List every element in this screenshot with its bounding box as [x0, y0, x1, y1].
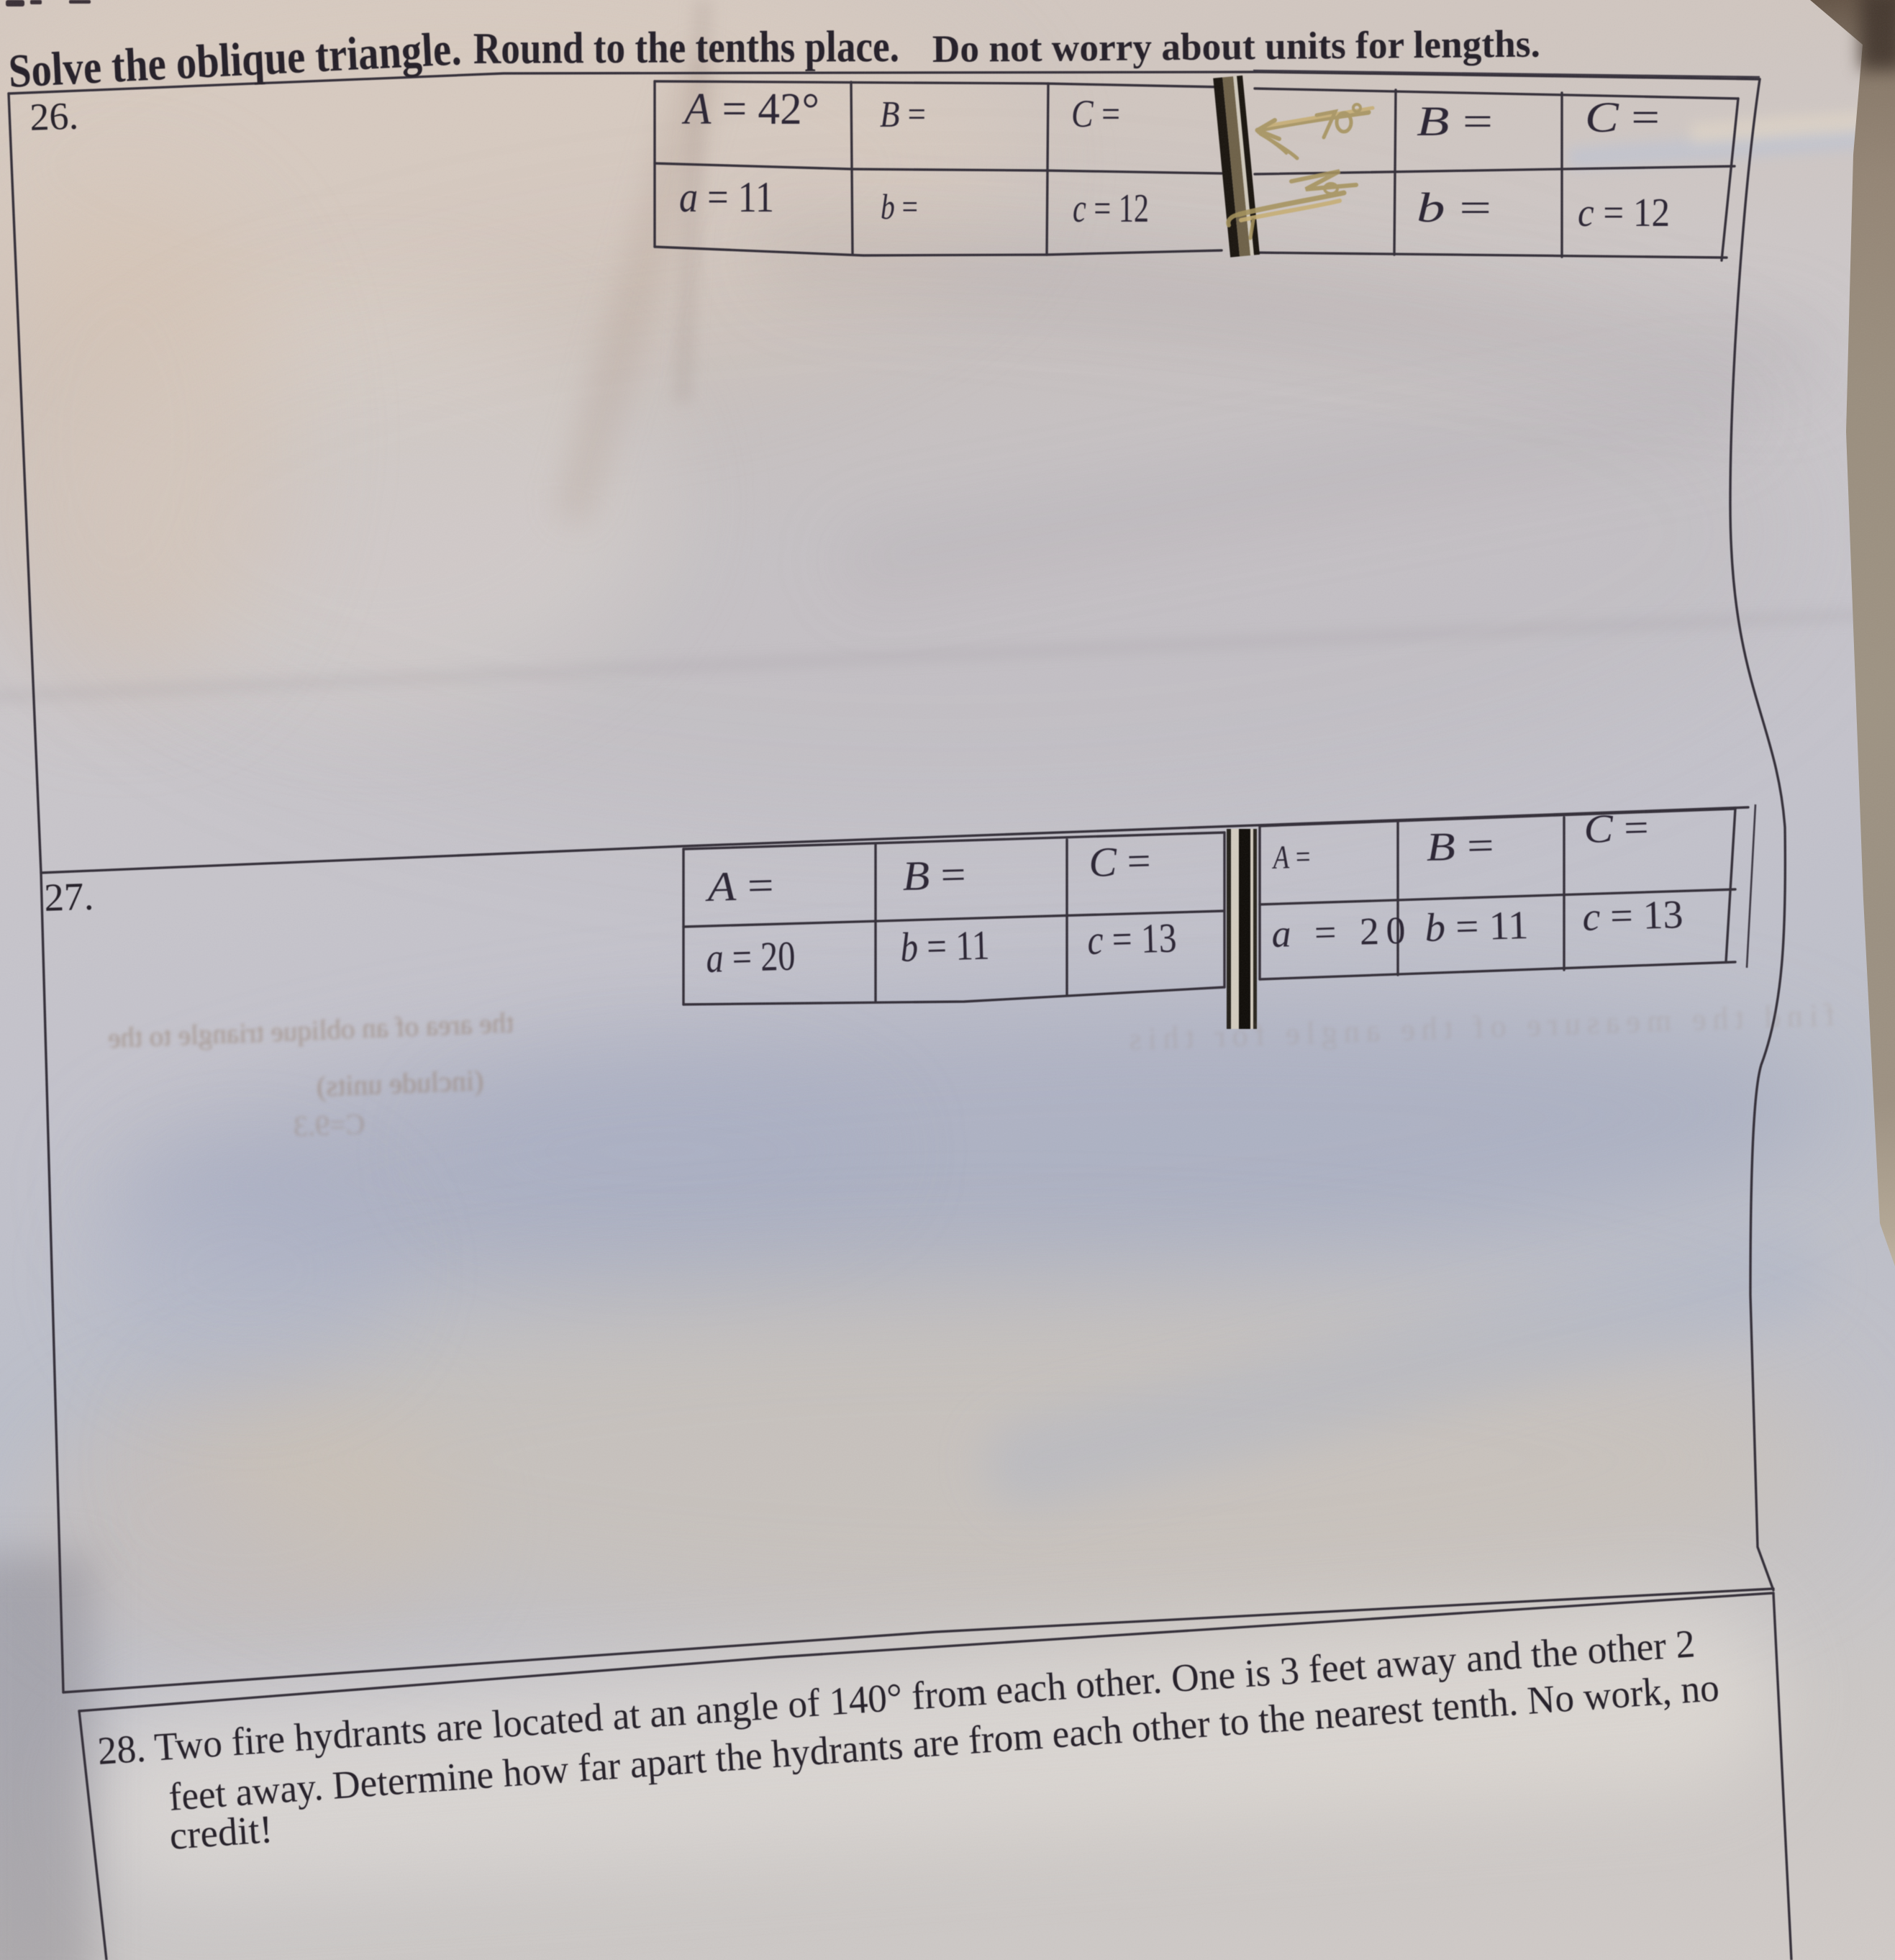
svg-text:c = 13: c = 13: [1087, 915, 1178, 963]
svg-text:c = 12: c = 12: [1073, 186, 1149, 231]
svg-text:B =: B =: [1417, 98, 1493, 145]
svg-text:Do not worry about units for l: Do not worry about units for lengths.: [932, 22, 1540, 71]
svg-text:C =: C =: [1089, 838, 1152, 886]
svg-text:b =: b =: [1417, 184, 1491, 231]
svg-text:a = 20: a = 20: [706, 933, 796, 981]
svg-text:b = 11: b = 11: [900, 922, 991, 971]
svg-text:B =: B =: [1426, 823, 1495, 870]
svg-text:Solve the oblique triangle.: Solve the oblique triangle.: [7, 22, 463, 98]
svg-text:C =: C =: [1583, 806, 1650, 852]
svg-text:27.: 27.: [43, 874, 94, 920]
svg-text:Round to the tenths place.: Round to the tenths place.: [473, 22, 899, 73]
svg-text:a = 11: a = 11: [679, 173, 774, 221]
svg-text:28. Two fire hydrants are loc: 28. Two fire hydrants are located at an …: [96, 1621, 1696, 1773]
svg-text:B =: B =: [880, 94, 926, 135]
svg-text:C =: C =: [1071, 92, 1120, 135]
svg-text:credit!: credit!: [168, 1807, 274, 1858]
svg-text:A =: A =: [704, 861, 774, 910]
svg-text:c = 12: c = 12: [1578, 191, 1670, 235]
svg-text:A =: A =: [1271, 838, 1311, 876]
svg-text:B =: B =: [902, 851, 967, 899]
svg-text:feet away. Determine how far: feet away. Determine how far apart the h…: [168, 1665, 1721, 1819]
svg-text:b =: b =: [881, 186, 918, 227]
svg-text:A = 42°: A = 42°: [681, 85, 819, 134]
svg-text:C =: C =: [1585, 94, 1660, 141]
svg-text:b = 11: b = 11: [1424, 903, 1530, 950]
svg-text:c = 13: c = 13: [1582, 892, 1684, 940]
svg-text:26.: 26.: [29, 94, 79, 139]
svg-text:a = 20: a = 20: [1271, 909, 1407, 956]
